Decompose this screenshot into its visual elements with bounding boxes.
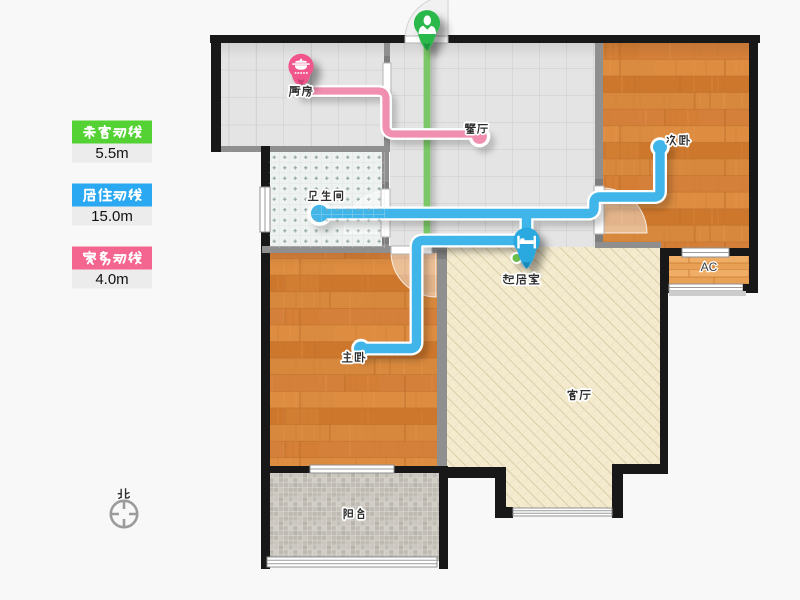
svg-text:15.0m: 15.0m xyxy=(91,208,133,225)
svg-text:5.5m: 5.5m xyxy=(95,145,128,162)
svg-text:4.0m: 4.0m xyxy=(95,271,128,288)
svg-text:AC: AC xyxy=(701,260,718,274)
